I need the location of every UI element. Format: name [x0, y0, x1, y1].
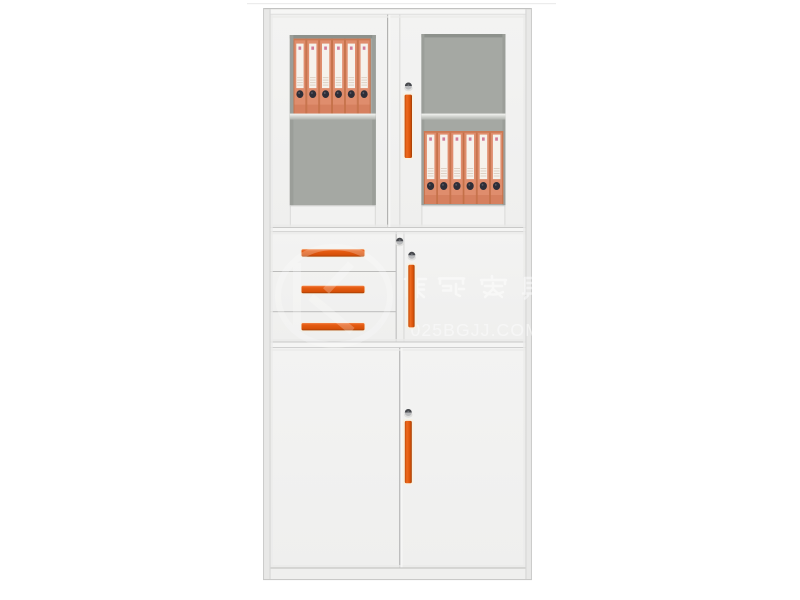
- svg-text:025BGJJ.COM: 025BGJJ.COM: [411, 320, 541, 340]
